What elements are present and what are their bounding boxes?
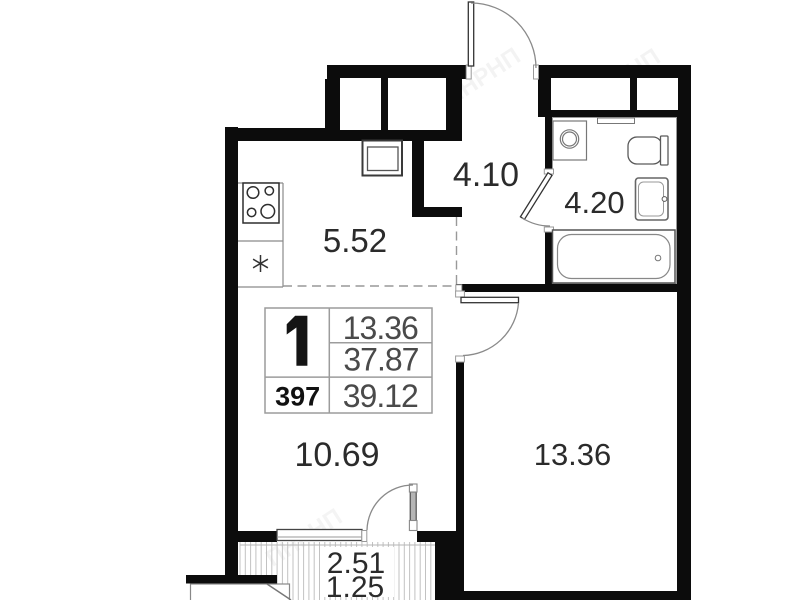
svg-text:13.36: 13.36 <box>534 437 612 472</box>
svg-text:1.25: 1.25 <box>326 571 384 600</box>
svg-text:397: 397 <box>275 382 320 412</box>
svg-text:5.52: 5.52 <box>323 222 387 259</box>
svg-text:37.87: 37.87 <box>343 342 418 378</box>
svg-text:4.10: 4.10 <box>453 156 519 194</box>
svg-text:13.36: 13.36 <box>343 310 418 346</box>
svg-text:39.12: 39.12 <box>343 378 418 414</box>
svg-text:10.69: 10.69 <box>294 436 379 474</box>
svg-text:4.20: 4.20 <box>564 185 624 220</box>
